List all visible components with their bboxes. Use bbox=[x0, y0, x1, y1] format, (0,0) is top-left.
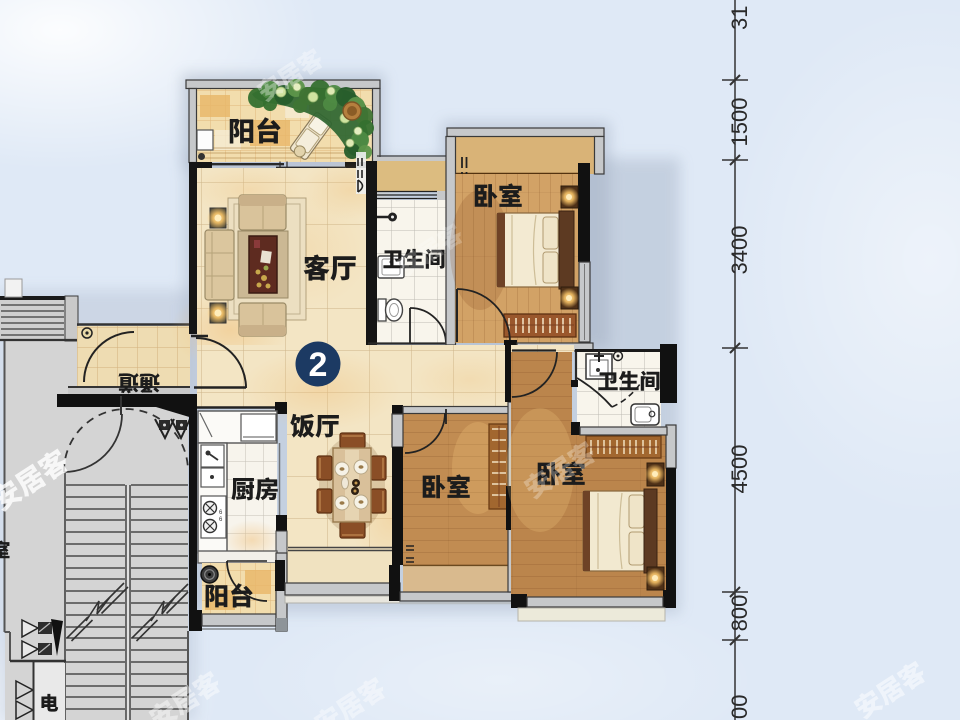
svg-text:3400: 3400 bbox=[727, 226, 752, 275]
svg-text:00: 00 bbox=[727, 695, 752, 719]
svg-text:1500: 1500 bbox=[727, 98, 752, 147]
svg-text:800: 800 bbox=[727, 595, 752, 632]
svg-text:4500: 4500 bbox=[727, 445, 752, 494]
svg-text:31: 31 bbox=[727, 6, 752, 30]
svg-text:2: 2 bbox=[309, 346, 328, 384]
